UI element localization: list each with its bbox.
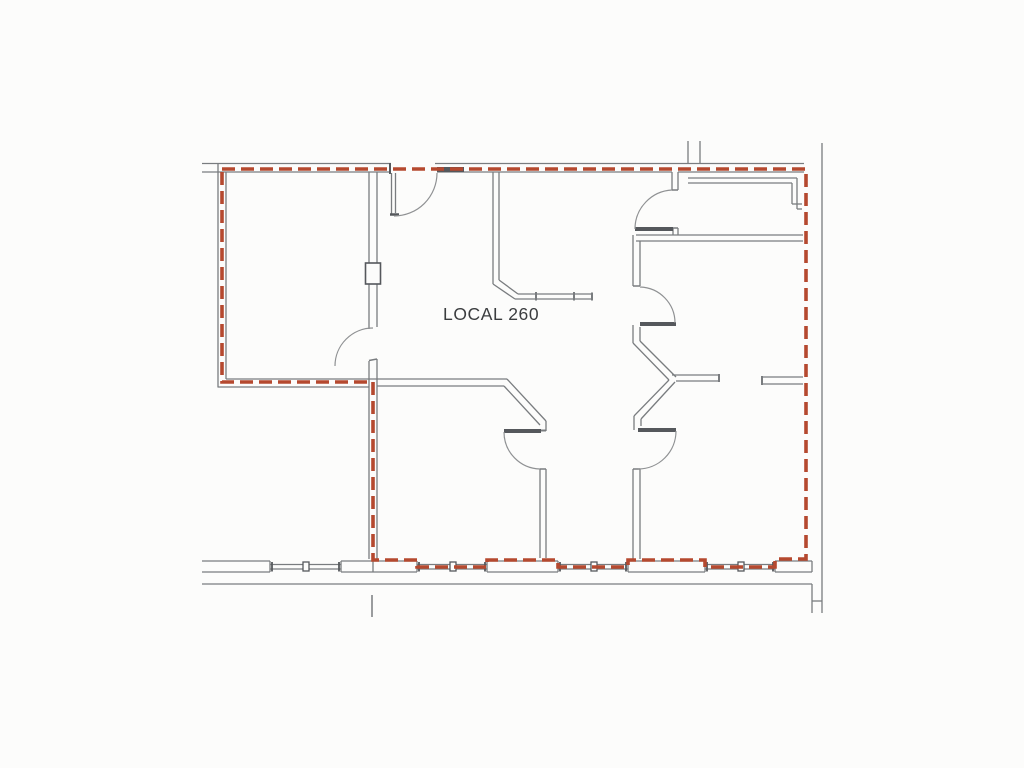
floor-plan-svg: LOCAL 260 [0,0,1024,768]
door-swing-arc [638,431,676,469]
wall-segment [493,284,515,299]
door-swing-arc [635,190,672,229]
wall-segment [634,380,669,416]
wall-segment [640,341,676,377]
wall-segment [633,343,669,380]
door-swing-arc [504,432,540,469]
wall-segment [641,382,675,419]
fixture-rect [366,263,381,284]
door-swing-arc [394,173,437,216]
wall-segment [504,386,540,425]
lease-boundary-path [222,169,806,567]
wall-segment [507,379,546,421]
door-swing-arc [335,328,373,366]
walls-layer [202,141,822,617]
fixture-rect [303,562,309,571]
wall-segment [369,359,377,361]
room-label: LOCAL 260 [443,304,539,324]
door-swing-arc [640,287,675,323]
wall-segment [499,280,518,294]
drawing-sheet: LOCAL 260 [0,0,1024,768]
lease-boundary-line [222,169,806,567]
